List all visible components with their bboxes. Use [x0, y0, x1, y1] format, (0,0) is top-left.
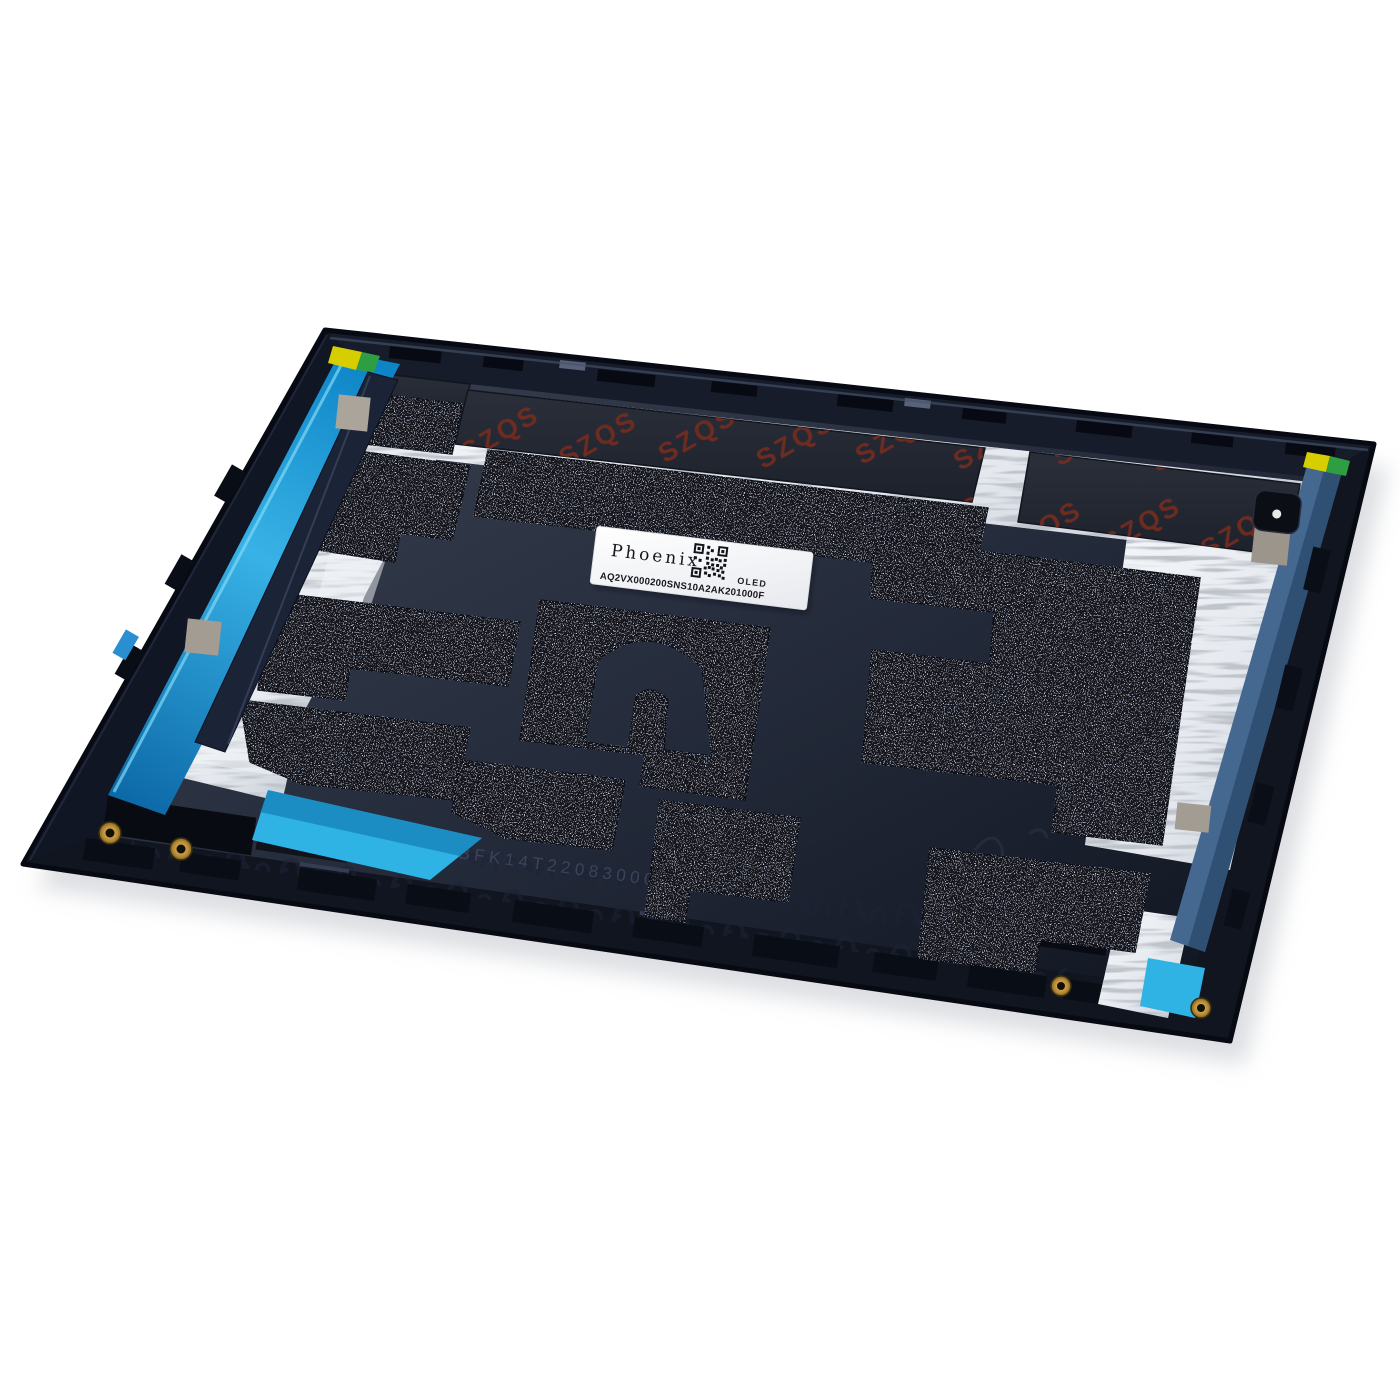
photo-canvas: SZQS SZQS BFK14T22083000148	[0, 0, 1400, 1400]
gray-foam-block	[335, 394, 370, 431]
gray-foam-block	[184, 618, 221, 655]
brass-insert	[170, 838, 192, 860]
brass-insert	[99, 822, 121, 844]
brass-insert	[1051, 976, 1071, 996]
camera-opening	[1252, 490, 1302, 535]
brass-insert	[1191, 998, 1211, 1018]
laptop-lid-photo: SZQS SZQS BFK14T22083000148	[0, 0, 1400, 1400]
gray-foam-block	[1175, 802, 1212, 832]
